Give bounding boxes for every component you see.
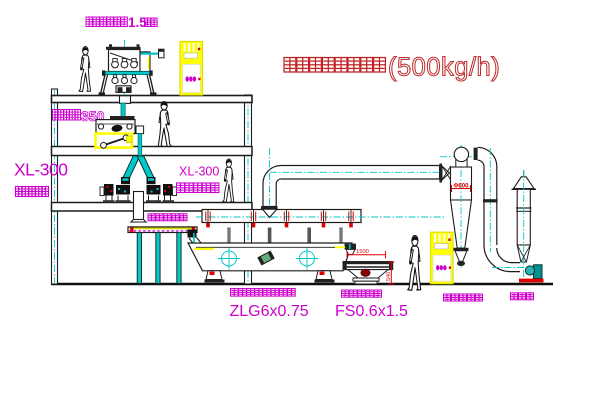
svg-text:XL-300: XL-300 — [14, 160, 68, 180]
svg-text:XL-300: XL-300 — [179, 165, 219, 179]
svg-text:1500: 1500 — [356, 249, 369, 255]
svg-text:Φ600: Φ600 — [454, 183, 470, 189]
svg-text:(500kg/h): (500kg/h) — [388, 54, 500, 82]
svg-text:FS0.6x1.5: FS0.6x1.5 — [335, 303, 408, 320]
svg-text:540: 540 — [386, 272, 392, 281]
svg-text:ZLG6x0.75: ZLG6x0.75 — [230, 303, 309, 320]
